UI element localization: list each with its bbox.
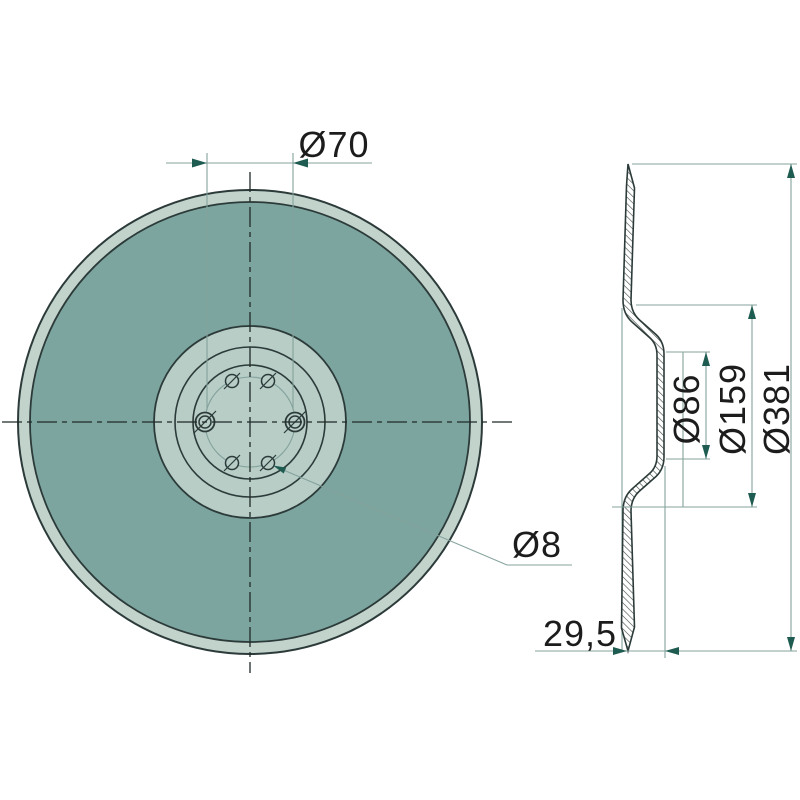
- dim-depth: 29,5: [543, 613, 679, 655]
- dim-label-bolt-circle: Ø70: [298, 124, 369, 165]
- arrowhead-bottom: [748, 493, 756, 507]
- dim-hub-flat: Ø86: [666, 352, 710, 459]
- technical-drawing-canvas: Ø70 Ø8 Ø86: [0, 0, 800, 800]
- section-view: Ø86 Ø159 Ø381 29,5: [535, 164, 797, 658]
- front-view: Ø70 Ø8: [2, 124, 572, 673]
- arrowhead-top: [787, 164, 795, 178]
- dim-label-hub-flat: Ø86: [666, 373, 707, 444]
- arrowhead-left: [192, 159, 207, 168]
- arrowhead-top: [702, 352, 710, 366]
- dim-label-hole: Ø8: [512, 524, 562, 565]
- arrowhead-bottom: [702, 445, 710, 459]
- arrowhead-right: [665, 647, 679, 655]
- dim-cone: Ø159: [712, 305, 756, 507]
- dim-label-cone: Ø159: [712, 363, 753, 455]
- dim-label-depth: 29,5: [543, 613, 617, 654]
- dim-label-outer: Ø381: [756, 363, 797, 455]
- arrowhead-bottom: [787, 637, 795, 651]
- section-profile: [622, 164, 665, 651]
- drawing-stage: Ø70 Ø8 Ø86: [0, 0, 800, 800]
- arrowhead-top: [748, 305, 756, 319]
- dim-outer: Ø381: [756, 164, 797, 651]
